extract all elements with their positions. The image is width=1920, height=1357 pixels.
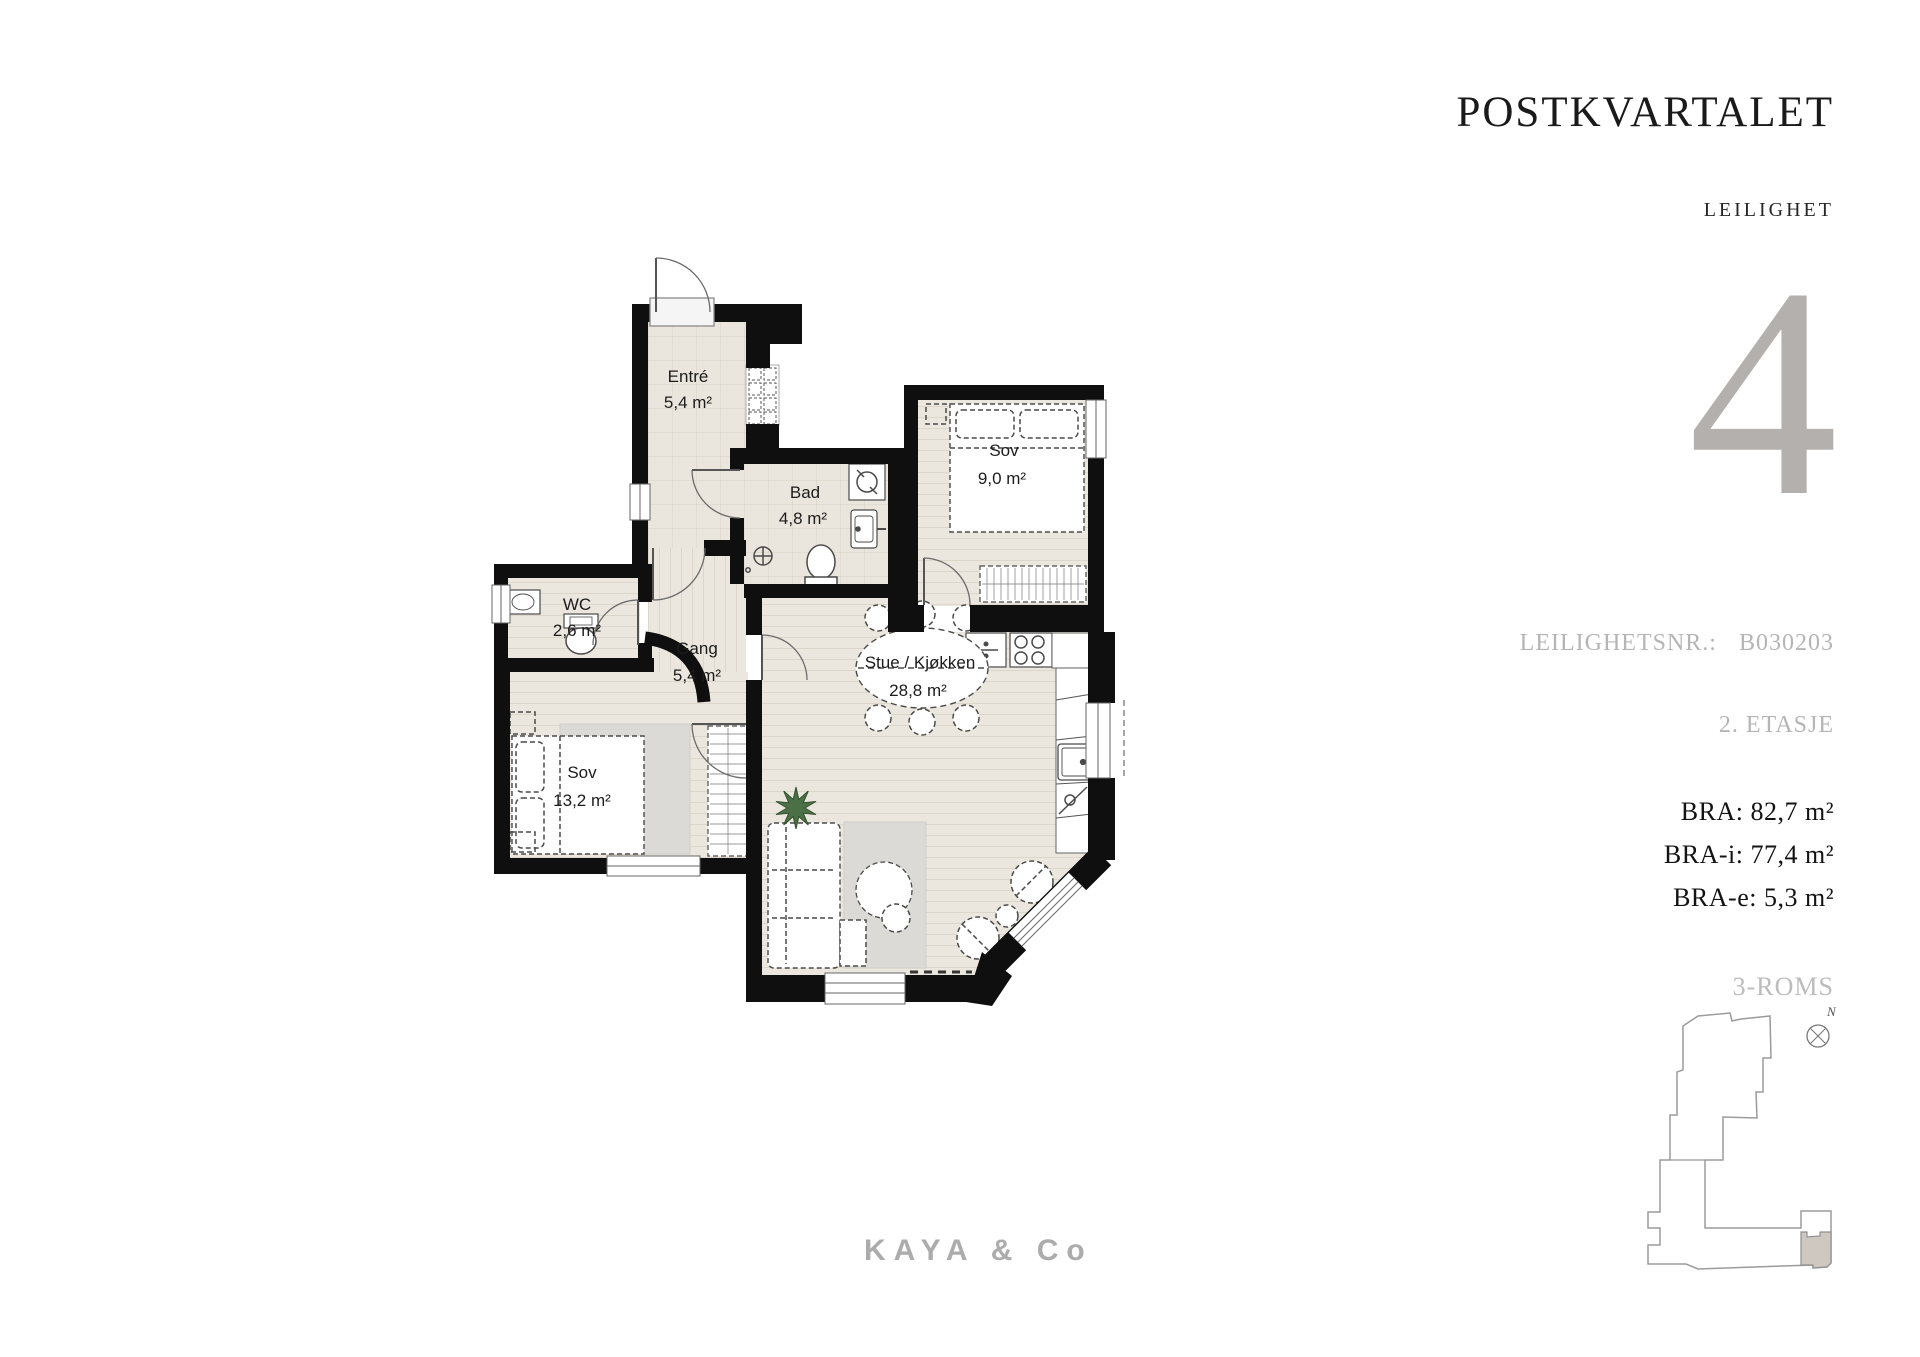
- bra-total: BRA: 82,7 m²: [1664, 790, 1834, 833]
- building-outline: [1648, 1013, 1831, 1269]
- window-kitchen: [1086, 703, 1110, 778]
- floor-plan: Entré 5,4 m² Bad 4,8 m² Sov 9,0 m² WC 2,…: [480, 240, 1160, 1040]
- subtitle-leilighet: LEILIGHET: [1704, 199, 1834, 222]
- window-entre: [630, 484, 650, 520]
- entrance-door: [650, 258, 714, 326]
- window-sov9: [1086, 400, 1106, 458]
- wc-sink-icon: [508, 590, 540, 614]
- highlighted-unit: [1801, 1232, 1831, 1268]
- floorplan-sheet: POSTKVARTALET LEILIGHET 4 LEILIGHETSNR.:…: [0, 0, 1920, 1357]
- brand-logo: KAYA & Co: [864, 1234, 1093, 1268]
- cooktop-icon: [1010, 633, 1052, 667]
- room-area-stue: 28,8 m²: [889, 681, 947, 700]
- room-area-gang: 5,4 m²: [673, 666, 722, 685]
- window-sov13: [607, 856, 700, 876]
- room-label-bad: Bad: [790, 483, 820, 502]
- unit-number-value: B030203: [1739, 630, 1834, 656]
- unit-number-label: LEILIGHETSNR.:: [1520, 630, 1717, 656]
- unit-number-line: LEILIGHETSNR.:B030203: [1520, 630, 1834, 657]
- room-area-sov9: 9,0 m²: [978, 469, 1027, 488]
- window-wc: [492, 585, 510, 623]
- room-area-sov13: 13,2 m²: [553, 791, 611, 810]
- washing-machine-icon: [849, 464, 885, 500]
- room-area-bad: 4,8 m²: [779, 509, 828, 528]
- building-locator-map: N: [1630, 1000, 1920, 1290]
- room-label-sov9: Sov: [989, 441, 1019, 460]
- entre-wardrobe: [746, 365, 779, 425]
- room-label-stue: Stue / Kjøkken: [865, 653, 976, 672]
- room-label-wc: WC: [563, 595, 591, 614]
- room-area-entre: 5,4 m²: [664, 393, 713, 412]
- north-label: N: [1826, 1004, 1837, 1019]
- wardrobe-9: [980, 566, 1086, 602]
- room-label-entre: Entré: [668, 367, 709, 386]
- wardrobe-13: [708, 726, 748, 856]
- area-summary: BRA: 82,7 m² BRA-i: 77,4 m² BRA-e: 5,3 m…: [1664, 790, 1834, 919]
- room-label-gang: Gang: [676, 639, 718, 658]
- bra-external: BRA-e: 5,3 m²: [1664, 876, 1834, 919]
- bra-internal: BRA-i: 77,4 m²: [1664, 833, 1834, 876]
- compass-icon: N: [1807, 1004, 1837, 1047]
- room-count-label: 3-ROMS: [1733, 972, 1834, 1002]
- floor-label: 2. ETASJE: [1719, 712, 1834, 739]
- window-stue: [825, 973, 905, 1004]
- room-label-sov13: Sov: [567, 763, 597, 782]
- room-area-wc: 2,6 m²: [553, 621, 602, 640]
- page-title: POSTKVARTALET: [1456, 88, 1834, 137]
- apartment-number: 4: [1688, 242, 1838, 542]
- toilet-icon: [805, 545, 837, 585]
